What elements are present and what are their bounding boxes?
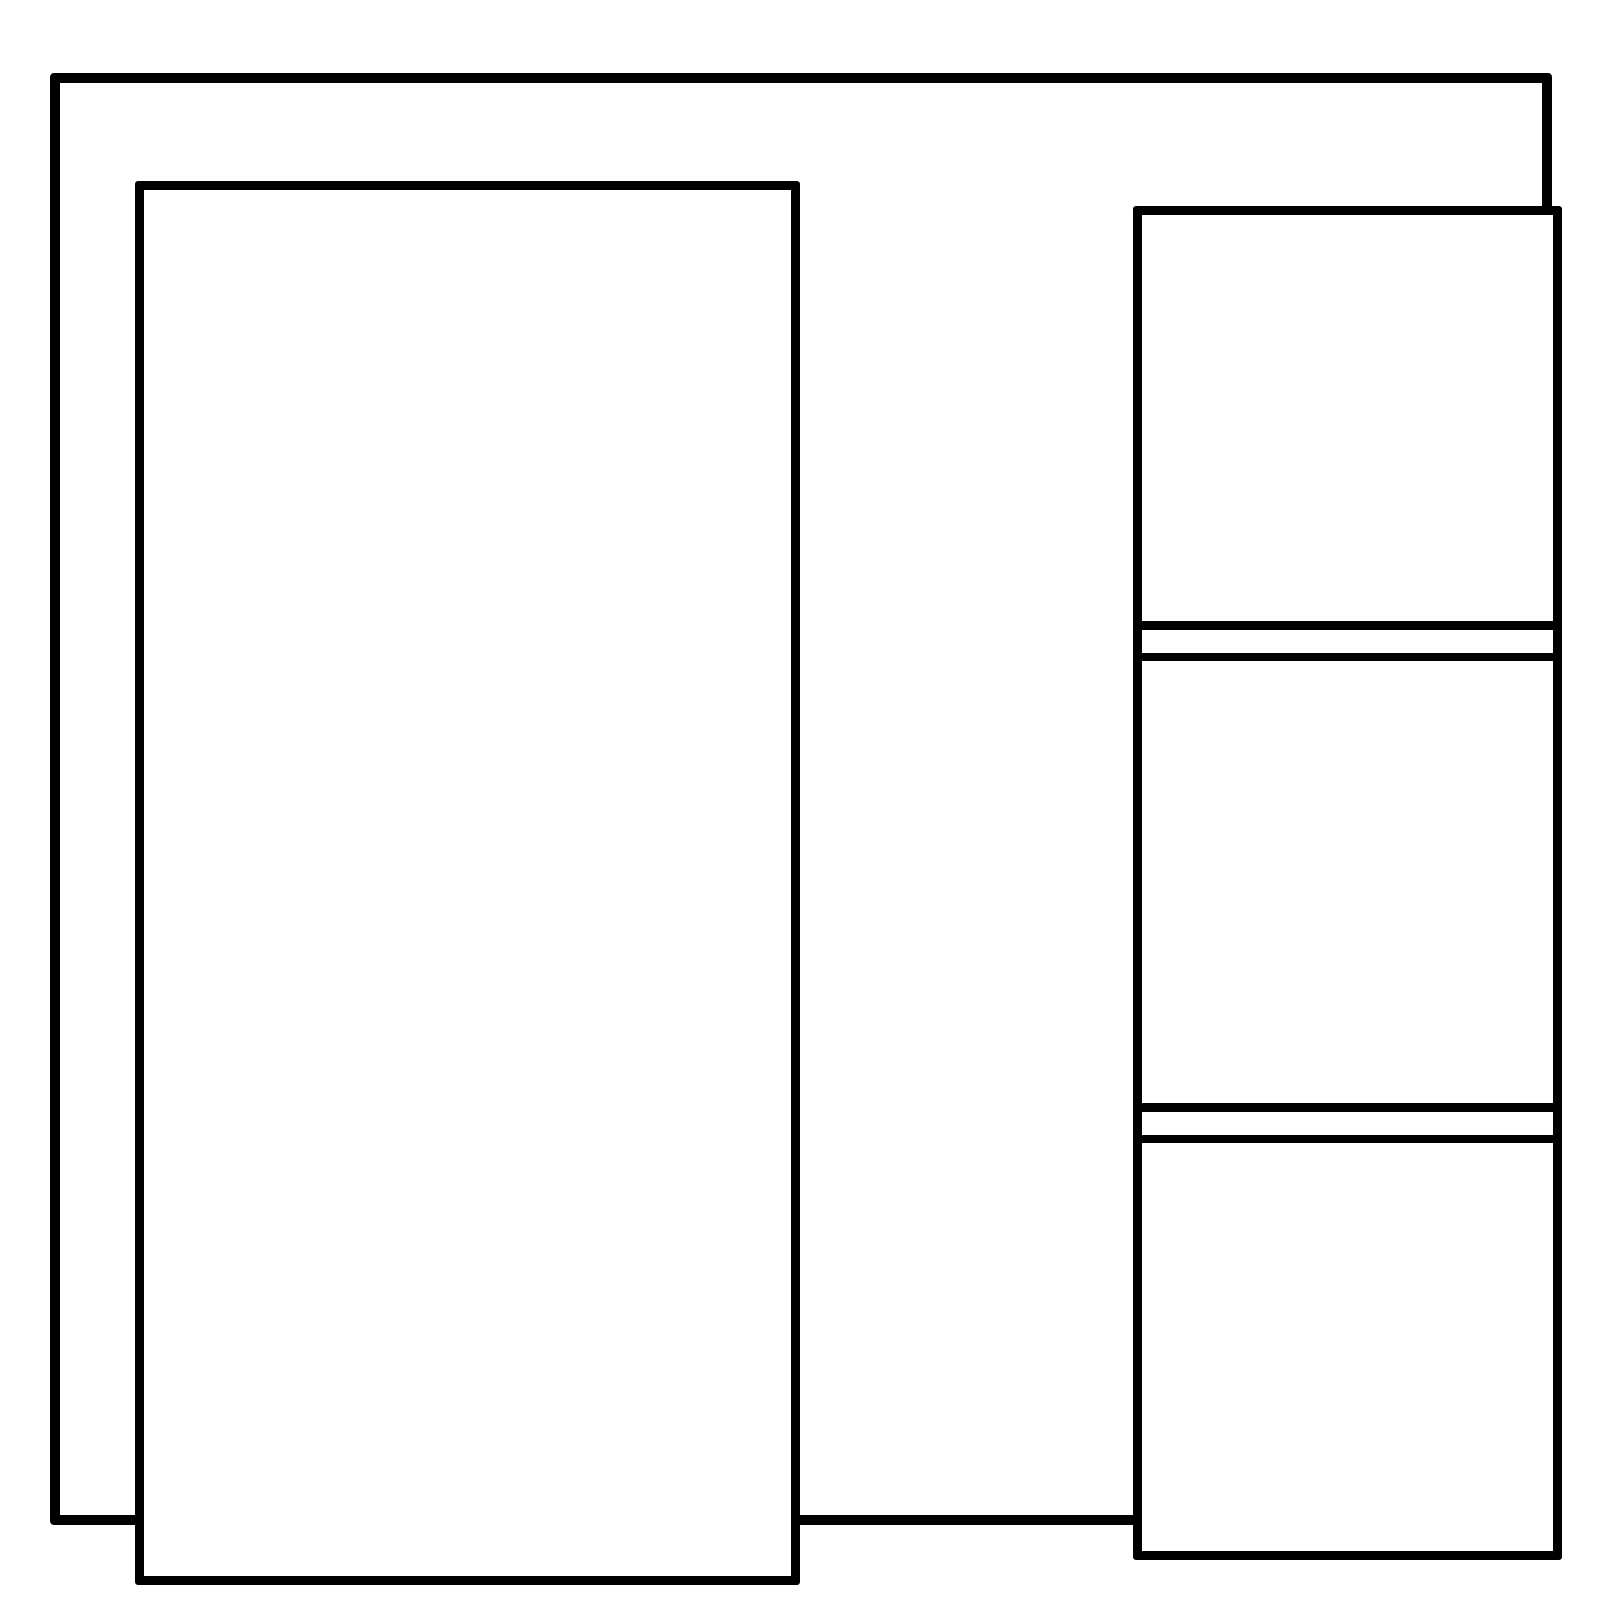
right-panel-section-top: [1142, 215, 1553, 621]
right-panel-column: [1133, 206, 1562, 1560]
diagram-canvas: [0, 0, 1600, 1600]
left-panel: [135, 181, 800, 1585]
horizontal-separator-1: [1142, 621, 1553, 661]
right-panel-section-bottom: [1142, 1143, 1553, 1551]
outer-frame: [50, 73, 1552, 1525]
horizontal-separator-2: [1142, 1103, 1553, 1143]
right-panel-section-middle: [1142, 661, 1553, 1103]
